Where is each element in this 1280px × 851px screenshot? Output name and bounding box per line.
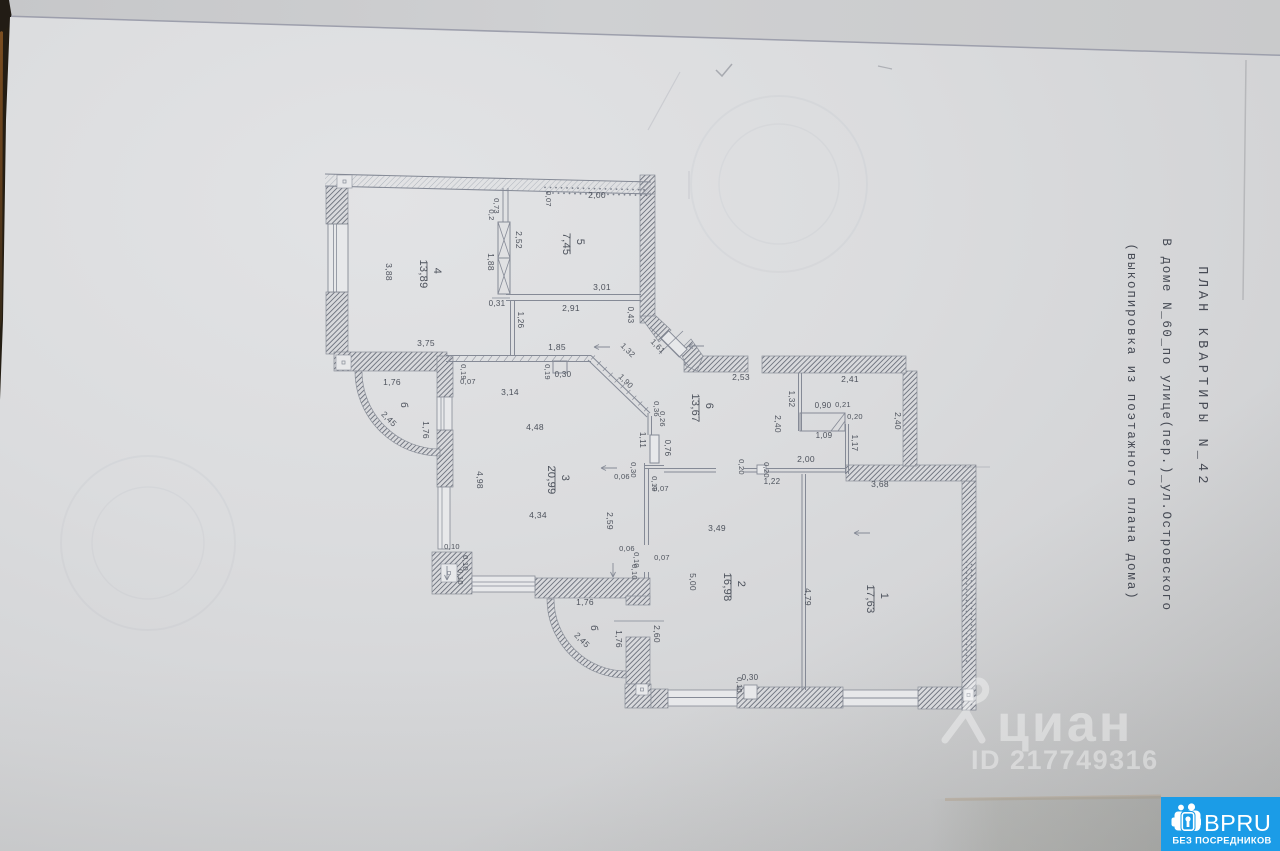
svg-text:0,76: 0,76 — [663, 440, 672, 457]
svg-text:3,01: 3,01 — [593, 282, 611, 292]
svg-text:ПЛАН КВАРТИРЫ N_42: ПЛАН КВАРТИРЫ N_42 — [1194, 266, 1209, 487]
svg-text:2,00: 2,00 — [797, 454, 815, 464]
svg-text:0,20: 0,20 — [737, 459, 746, 475]
svg-text:0,31: 0,31 — [489, 299, 506, 308]
svg-text:1,76: 1,76 — [614, 630, 624, 648]
svg-text:3,14: 3,14 — [501, 387, 519, 397]
svg-text:6: 6 — [703, 403, 715, 409]
svg-text:2,59: 2,59 — [605, 512, 615, 530]
svg-text:0,21: 0,21 — [835, 400, 851, 409]
svg-text:0,07: 0,07 — [460, 377, 476, 386]
svg-text:2: 2 — [735, 581, 747, 587]
svg-text:б: б — [588, 625, 600, 631]
svg-text:1,11: 1,11 — [638, 432, 647, 448]
svg-text:3,88: 3,88 — [384, 263, 394, 281]
svg-text:0,30: 0,30 — [555, 370, 572, 379]
svg-text:1,32: 1,32 — [787, 391, 796, 408]
svg-text:БЕЗ ПОСРЕДНИКОВ: БЕЗ ПОСРЕДНИКОВ — [1172, 836, 1271, 846]
svg-text:1,85: 1,85 — [548, 342, 566, 352]
svg-text:1,22: 1,22 — [764, 477, 781, 486]
svg-text:В доме N_60_по улице(пер.)_ул.: В доме N_60_по улице(пер.)_ул.Островског… — [1159, 238, 1173, 611]
svg-text:2,40: 2,40 — [773, 415, 783, 433]
svg-text:3,75: 3,75 — [417, 338, 435, 348]
svg-text:5: 5 — [574, 239, 586, 245]
svg-text:0,90: 0,90 — [815, 401, 832, 410]
svg-text:2,40: 2,40 — [893, 412, 903, 430]
svg-text:(выкопировка из поэтажного пла: (выкопировка из поэтажного плана дома) — [1124, 243, 1138, 600]
svg-text:1,88: 1,88 — [486, 253, 496, 271]
svg-text:0,43: 0,43 — [626, 307, 635, 324]
svg-text:2,91: 2,91 — [562, 303, 580, 313]
svg-text:2,53: 2,53 — [732, 372, 750, 382]
svg-text:2,00: 2,00 — [588, 190, 606, 200]
svg-text:0,10: 0,10 — [735, 677, 744, 693]
svg-text:0,06: 0,06 — [614, 472, 630, 481]
svg-text:2,41: 2,41 — [841, 374, 859, 384]
svg-text:0,2: 0,2 — [487, 209, 496, 220]
svg-text:ID 217749316: ID 217749316 — [971, 745, 1159, 775]
svg-text:1,17: 1,17 — [850, 435, 859, 452]
svg-text:3: 3 — [559, 475, 571, 481]
svg-text:1,09: 1,09 — [816, 431, 833, 440]
svg-text:3,68: 3,68 — [871, 479, 889, 489]
svg-text:5,00: 5,00 — [688, 573, 698, 591]
svg-text:0,10: 0,10 — [456, 569, 465, 585]
svg-text:3,49: 3,49 — [708, 523, 726, 533]
svg-text:1: 1 — [878, 593, 890, 599]
svg-text:BPRU: BPRU — [1204, 810, 1271, 836]
svg-text:0,07: 0,07 — [653, 484, 669, 493]
svg-text:4,98: 4,98 — [475, 471, 485, 489]
svg-text:4,34: 4,34 — [529, 510, 547, 520]
svg-text:0,26: 0,26 — [658, 411, 667, 427]
svg-text:2,60: 2,60 — [652, 625, 662, 643]
svg-text:0,10: 0,10 — [630, 564, 639, 580]
svg-text:4: 4 — [431, 268, 443, 274]
svg-text:б: б — [398, 402, 410, 408]
svg-text:1,26: 1,26 — [516, 312, 525, 329]
svg-text:0,10: 0,10 — [444, 542, 460, 551]
svg-text:0,20: 0,20 — [762, 462, 771, 478]
svg-text:0,20: 0,20 — [847, 412, 863, 421]
svg-text:2,52: 2,52 — [514, 231, 524, 249]
svg-text:0,19: 0,19 — [543, 364, 552, 380]
svg-text:0,30: 0,30 — [629, 462, 638, 478]
svg-text:0,07: 0,07 — [544, 191, 553, 207]
svg-text:0,07: 0,07 — [654, 553, 670, 562]
svg-text:1,76: 1,76 — [421, 421, 431, 439]
svg-text:4,79: 4,79 — [803, 588, 813, 606]
svg-text:1,76: 1,76 — [383, 377, 401, 387]
svg-text:1,76: 1,76 — [576, 597, 594, 607]
svg-text:4,48: 4,48 — [526, 422, 544, 432]
